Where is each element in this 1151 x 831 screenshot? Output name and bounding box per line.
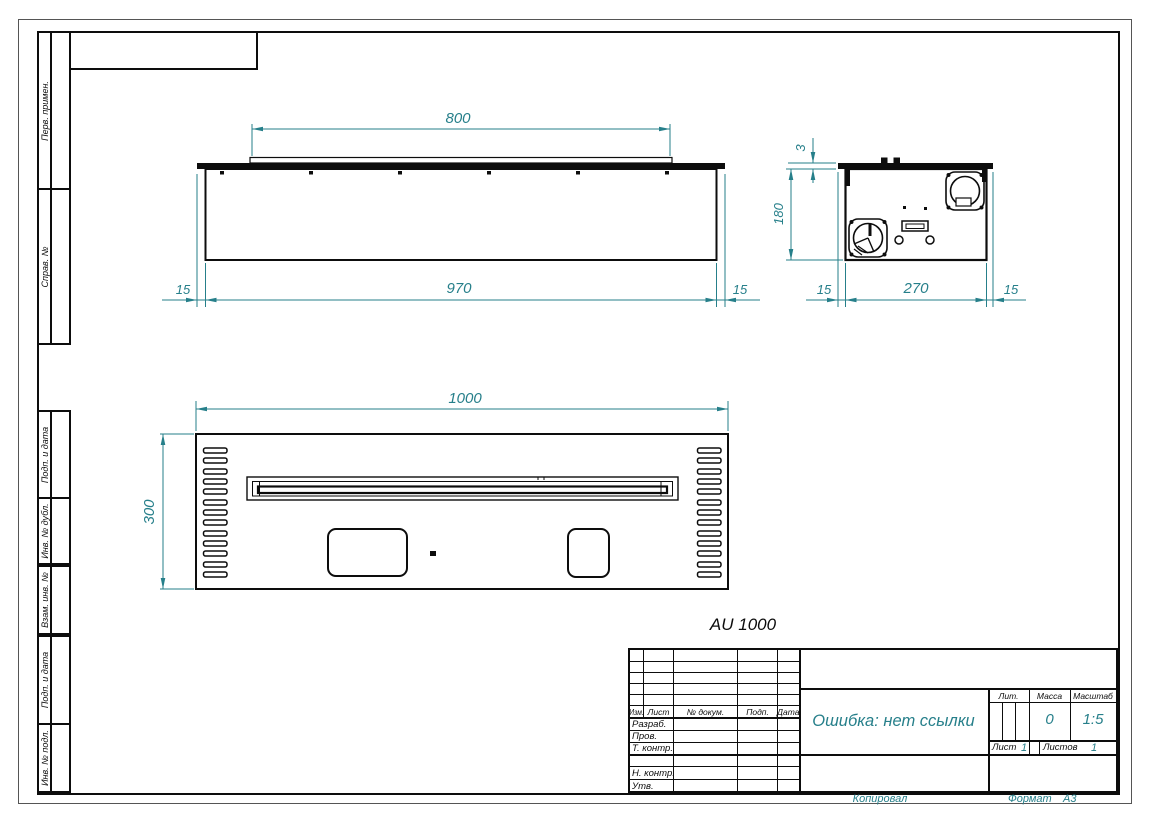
row-razrab: Разраб. [632,719,666,730]
format-label: Формат [1008,793,1052,805]
format-value: A3 [1063,793,1076,805]
model-designation: AU 1000 [698,615,788,635]
row-prov: Пров. [632,731,657,742]
front-view [197,158,725,261]
dim-970: 970 [446,280,472,297]
col-dokum: № докум. [674,707,737,717]
dim-15-right: 15 [733,282,748,297]
copied-label: Копировал [840,793,920,805]
dim-1000: 1000 [448,390,482,407]
plan-hole-dot [430,551,436,556]
col-izm: Изм. [629,707,644,717]
drawing-sheet: Перв. примен. Справ. № Подп. и дата Инв.… [0,0,1151,831]
col-podp: Подп. [738,707,777,717]
side-view [838,158,993,261]
dim-270: 270 [902,280,929,297]
row-t-kontr: Т. контр. [632,743,673,754]
sheets-label: Листов [1043,742,1078,753]
mass-value: 0 [1029,711,1070,728]
col-data: Дата [777,707,799,717]
row-n-kontr: Н. контр. [632,768,675,779]
dim-15-left: 15 [176,282,191,297]
dim-180: 180 [771,202,786,224]
plan-view [196,434,728,589]
scale-label: Масштаб [1070,691,1116,701]
lit-label: Лит. [988,691,1029,701]
dim-15-side-left: 15 [817,282,832,297]
sheet-value: 1 [1016,742,1032,754]
doc-name-cell: Ошибка: нет ссылки [799,688,988,754]
scale-value: 1:5 [1070,711,1116,728]
dim-800: 800 [445,110,471,127]
sheet-label: Лист [992,742,1016,753]
title-block: Изм. Лист № докум. Подп. Дата Разраб. Пр… [628,648,1118,793]
sheets-value: 1 [1086,742,1102,754]
dim-15-side-right: 15 [1004,282,1019,297]
mass-label: Масса [1029,691,1070,701]
dim-300: 300 [141,499,158,525]
col-list: Лист [644,707,673,717]
row-utv: Утв. [632,781,654,792]
dim-3: 3 [793,144,808,152]
